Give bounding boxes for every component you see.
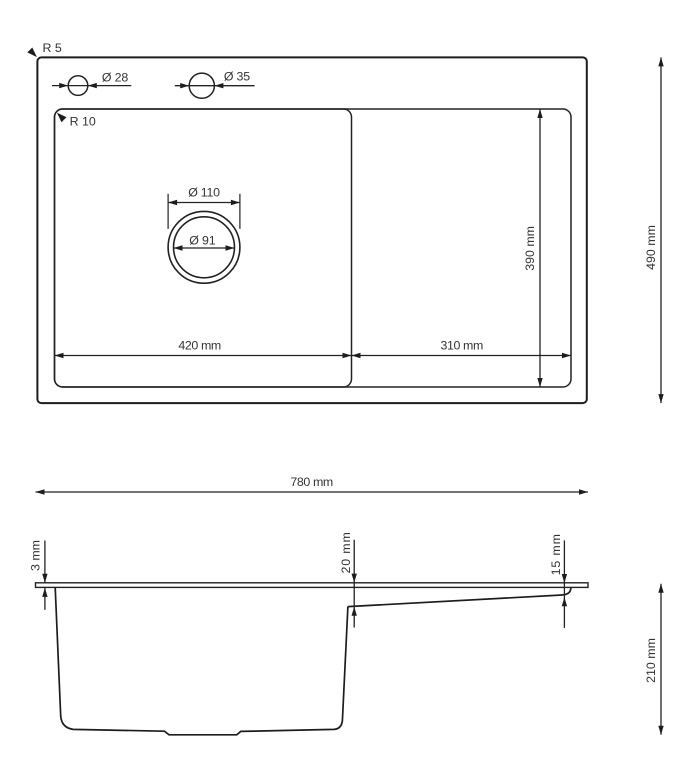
svg-text:Ø 110: Ø 110	[188, 186, 220, 200]
svg-text:390 mm: 390 mm	[523, 226, 537, 271]
svg-text:490 mm: 490 mm	[644, 225, 658, 270]
svg-text:R 5: R 5	[43, 41, 62, 55]
svg-text:3 mm: 3 mm	[28, 540, 42, 571]
svg-text:20 mm: 20 mm	[339, 532, 353, 573]
svg-text:Ø 35: Ø 35	[224, 69, 250, 83]
svg-text:780 mm: 780 mm	[290, 475, 333, 489]
svg-text:310 mm: 310 mm	[441, 339, 484, 353]
svg-text:15 mm: 15 mm	[549, 534, 563, 575]
svg-text:210 mm: 210 mm	[644, 638, 658, 683]
svg-text:Ø 28: Ø 28	[102, 70, 128, 84]
svg-text:Ø 91: Ø 91	[189, 233, 215, 247]
svg-text:420 mm: 420 mm	[178, 339, 221, 353]
svg-text:R 10: R 10	[70, 115, 96, 129]
